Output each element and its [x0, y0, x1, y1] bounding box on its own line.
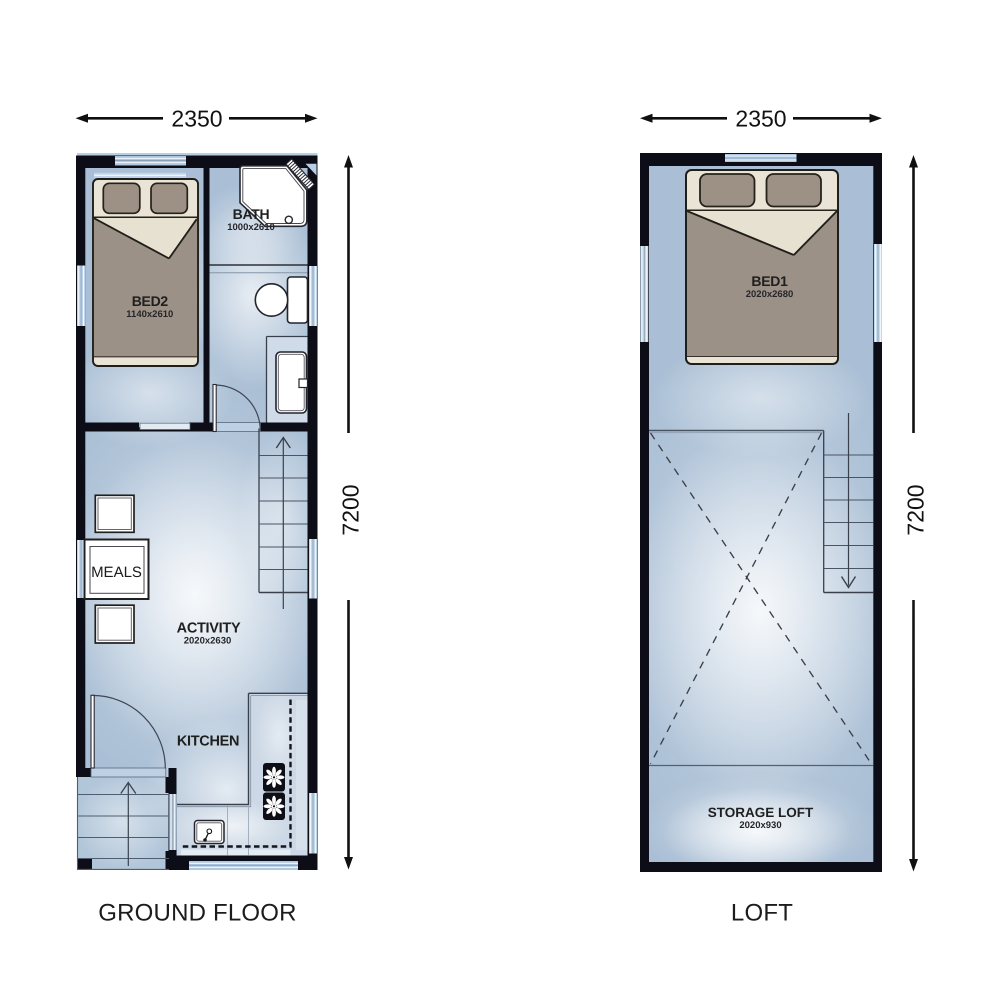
svg-text:ACTIVITY: ACTIVITY: [177, 621, 241, 637]
svg-text:BED1: BED1: [751, 273, 788, 289]
svg-text:2020x930: 2020x930: [739, 820, 781, 831]
svg-text:LOFT: LOFT: [731, 900, 793, 927]
svg-text:KITCHEN: KITCHEN: [177, 734, 239, 750]
svg-text:1140x2610: 1140x2610: [126, 309, 173, 320]
svg-text:BED2: BED2: [132, 293, 169, 309]
svg-text:2020x2680: 2020x2680: [746, 289, 794, 300]
svg-text:GROUND FLOOR: GROUND FLOOR: [98, 900, 296, 927]
svg-text:2350: 2350: [735, 106, 786, 132]
svg-text:BATH: BATH: [233, 206, 270, 222]
svg-text:2020x2630: 2020x2630: [184, 636, 232, 647]
svg-text:MEALS: MEALS: [91, 564, 142, 581]
svg-text:1000x2610: 1000x2610: [227, 222, 275, 233]
svg-text:2350: 2350: [171, 106, 222, 132]
svg-text:STORAGE LOFT: STORAGE LOFT: [708, 805, 814, 820]
